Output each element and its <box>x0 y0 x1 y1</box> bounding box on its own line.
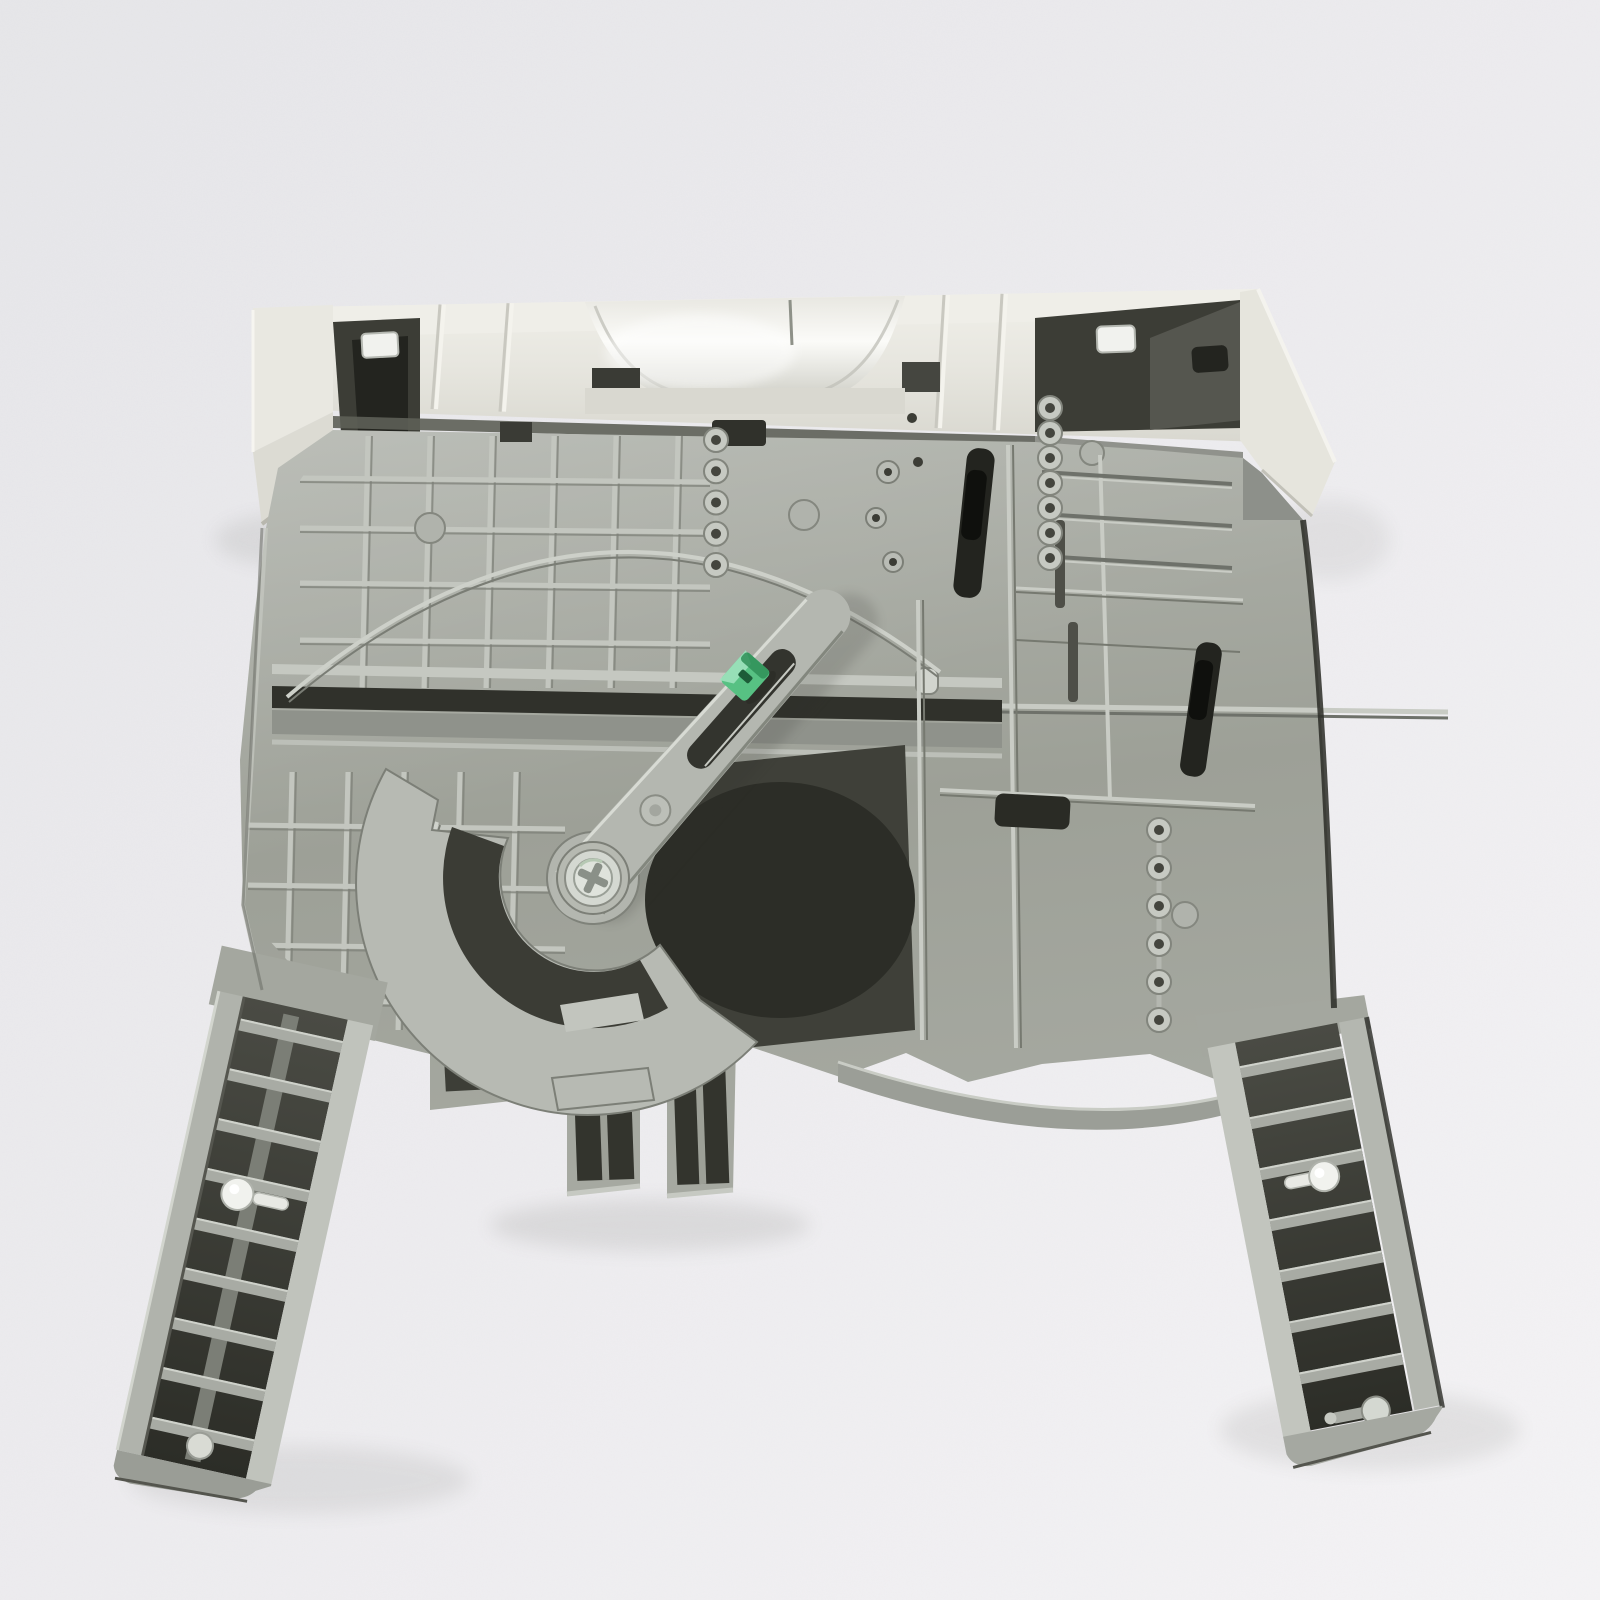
post-hole <box>889 558 897 566</box>
donut-hole <box>1045 428 1055 438</box>
slot-d <box>994 793 1071 830</box>
latch-right <box>1097 325 1136 352</box>
shadow-boxes <box>490 1199 810 1251</box>
notch-top-left <box>500 422 532 442</box>
post-hole <box>872 514 880 522</box>
post <box>877 461 899 483</box>
post <box>866 508 886 528</box>
donut-hole <box>711 466 721 476</box>
photo-stage <box>0 0 1600 1600</box>
donut-hole <box>1045 478 1055 488</box>
donut-hole <box>711 560 721 570</box>
scoop-center-tick <box>790 300 792 345</box>
donut-hole <box>1045 503 1055 513</box>
slot-right-cavity <box>1191 345 1229 373</box>
dimple <box>415 513 445 543</box>
post-hole <box>884 468 892 476</box>
donut-hole <box>1154 1015 1164 1025</box>
donut-hole <box>711 529 721 539</box>
donut-hole <box>1154 901 1164 911</box>
screw-hole-b <box>913 457 923 467</box>
pivot-screw <box>557 842 629 914</box>
post <box>883 552 903 572</box>
dimple <box>789 500 819 530</box>
latch-left <box>361 332 398 358</box>
donut-hole <box>1045 453 1055 463</box>
donut-hole <box>1154 825 1164 835</box>
donut-hole <box>711 435 721 445</box>
dimple <box>1172 902 1198 928</box>
scoop-sill <box>585 388 905 414</box>
screw-hole-a <box>907 413 917 423</box>
donut-hole <box>1154 863 1164 873</box>
paper-tray-photo <box>0 0 1600 1600</box>
donut-hole <box>711 498 721 508</box>
donut-hole <box>1154 939 1164 949</box>
donut-hole <box>1154 977 1164 987</box>
slot-thin-b <box>1068 622 1078 702</box>
scoop-side-pocket-right <box>902 362 940 392</box>
donut-hole <box>1045 403 1055 413</box>
donut-hole <box>1045 553 1055 563</box>
donut-hole <box>1045 528 1055 538</box>
